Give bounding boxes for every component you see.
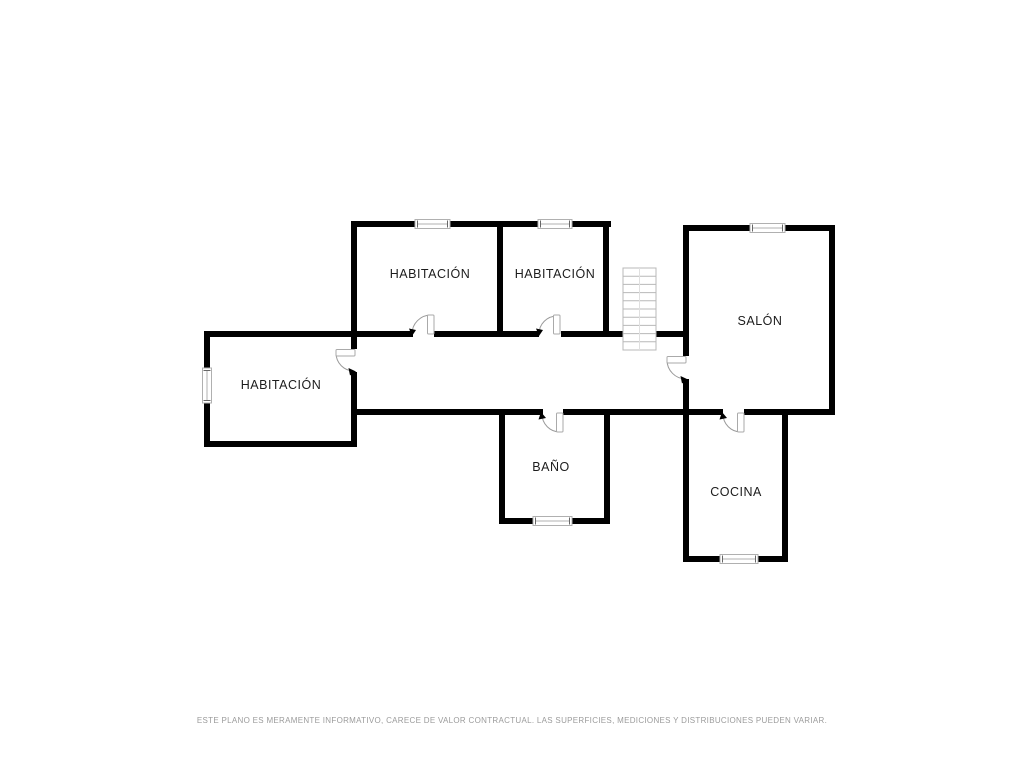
- window-habitacion-este: [538, 220, 572, 229]
- floor-plan-drawing: [0, 0, 1024, 762]
- door-habitacion-oeste: [336, 350, 356, 376]
- door-habitacion-centro: [409, 315, 434, 336]
- wall-bottom-bedroom-west: [204, 441, 357, 447]
- disclaimer-text: ESTE PLANO ES MERAMENTE INFORMATIVO, CAR…: [0, 716, 1024, 725]
- room-label-bano: BAÑO: [532, 460, 569, 474]
- wall-main-left-upper: [351, 221, 357, 349]
- room-label-cocina: COCINA: [710, 485, 762, 499]
- wall-corridor-bottom-1: [351, 409, 543, 415]
- door-cocina: [720, 412, 745, 432]
- window-bano: [533, 517, 572, 526]
- door-salon: [667, 357, 688, 384]
- wall-bano-right: [604, 409, 610, 524]
- wall-corridor-top-3: [561, 331, 623, 337]
- wall-bedroom-divider: [497, 221, 503, 337]
- wall-salon-right: [829, 225, 835, 415]
- wall-salon-left-upper: [683, 225, 689, 356]
- window-cocina: [720, 555, 758, 564]
- wall-cocina-right: [782, 409, 788, 562]
- room-label-habitacion-oeste: HABITACIÓN: [241, 378, 321, 392]
- wall-bedroom-east-right: [603, 221, 609, 337]
- window-habitacion-centro: [415, 220, 450, 229]
- door-bano: [539, 412, 564, 432]
- wall-corridor-top-1: [204, 331, 413, 337]
- wall-corridor-top-2: [434, 331, 539, 337]
- staircase: [623, 268, 656, 350]
- wall-main-left-lower: [351, 372, 357, 447]
- wall-salon-left-lower: [683, 379, 689, 562]
- wall-corridor-bottom-2: [563, 409, 723, 415]
- wall-corridor-bottom-3: [744, 409, 835, 415]
- room-label-habitacion-centro: HABITACIÓN: [390, 267, 470, 281]
- window-salon: [750, 224, 785, 233]
- window-habitacion-oeste: [203, 368, 212, 403]
- door-habitacion-este: [536, 315, 560, 336]
- wall-bano-left: [499, 409, 505, 524]
- room-label-salon: SALÓN: [738, 314, 783, 328]
- floor-plan-page: HABITACIÓN HABITACIÓN HABITACIÓN SALÓN B…: [0, 0, 1024, 762]
- room-label-habitacion-este: HABITACIÓN: [515, 267, 595, 281]
